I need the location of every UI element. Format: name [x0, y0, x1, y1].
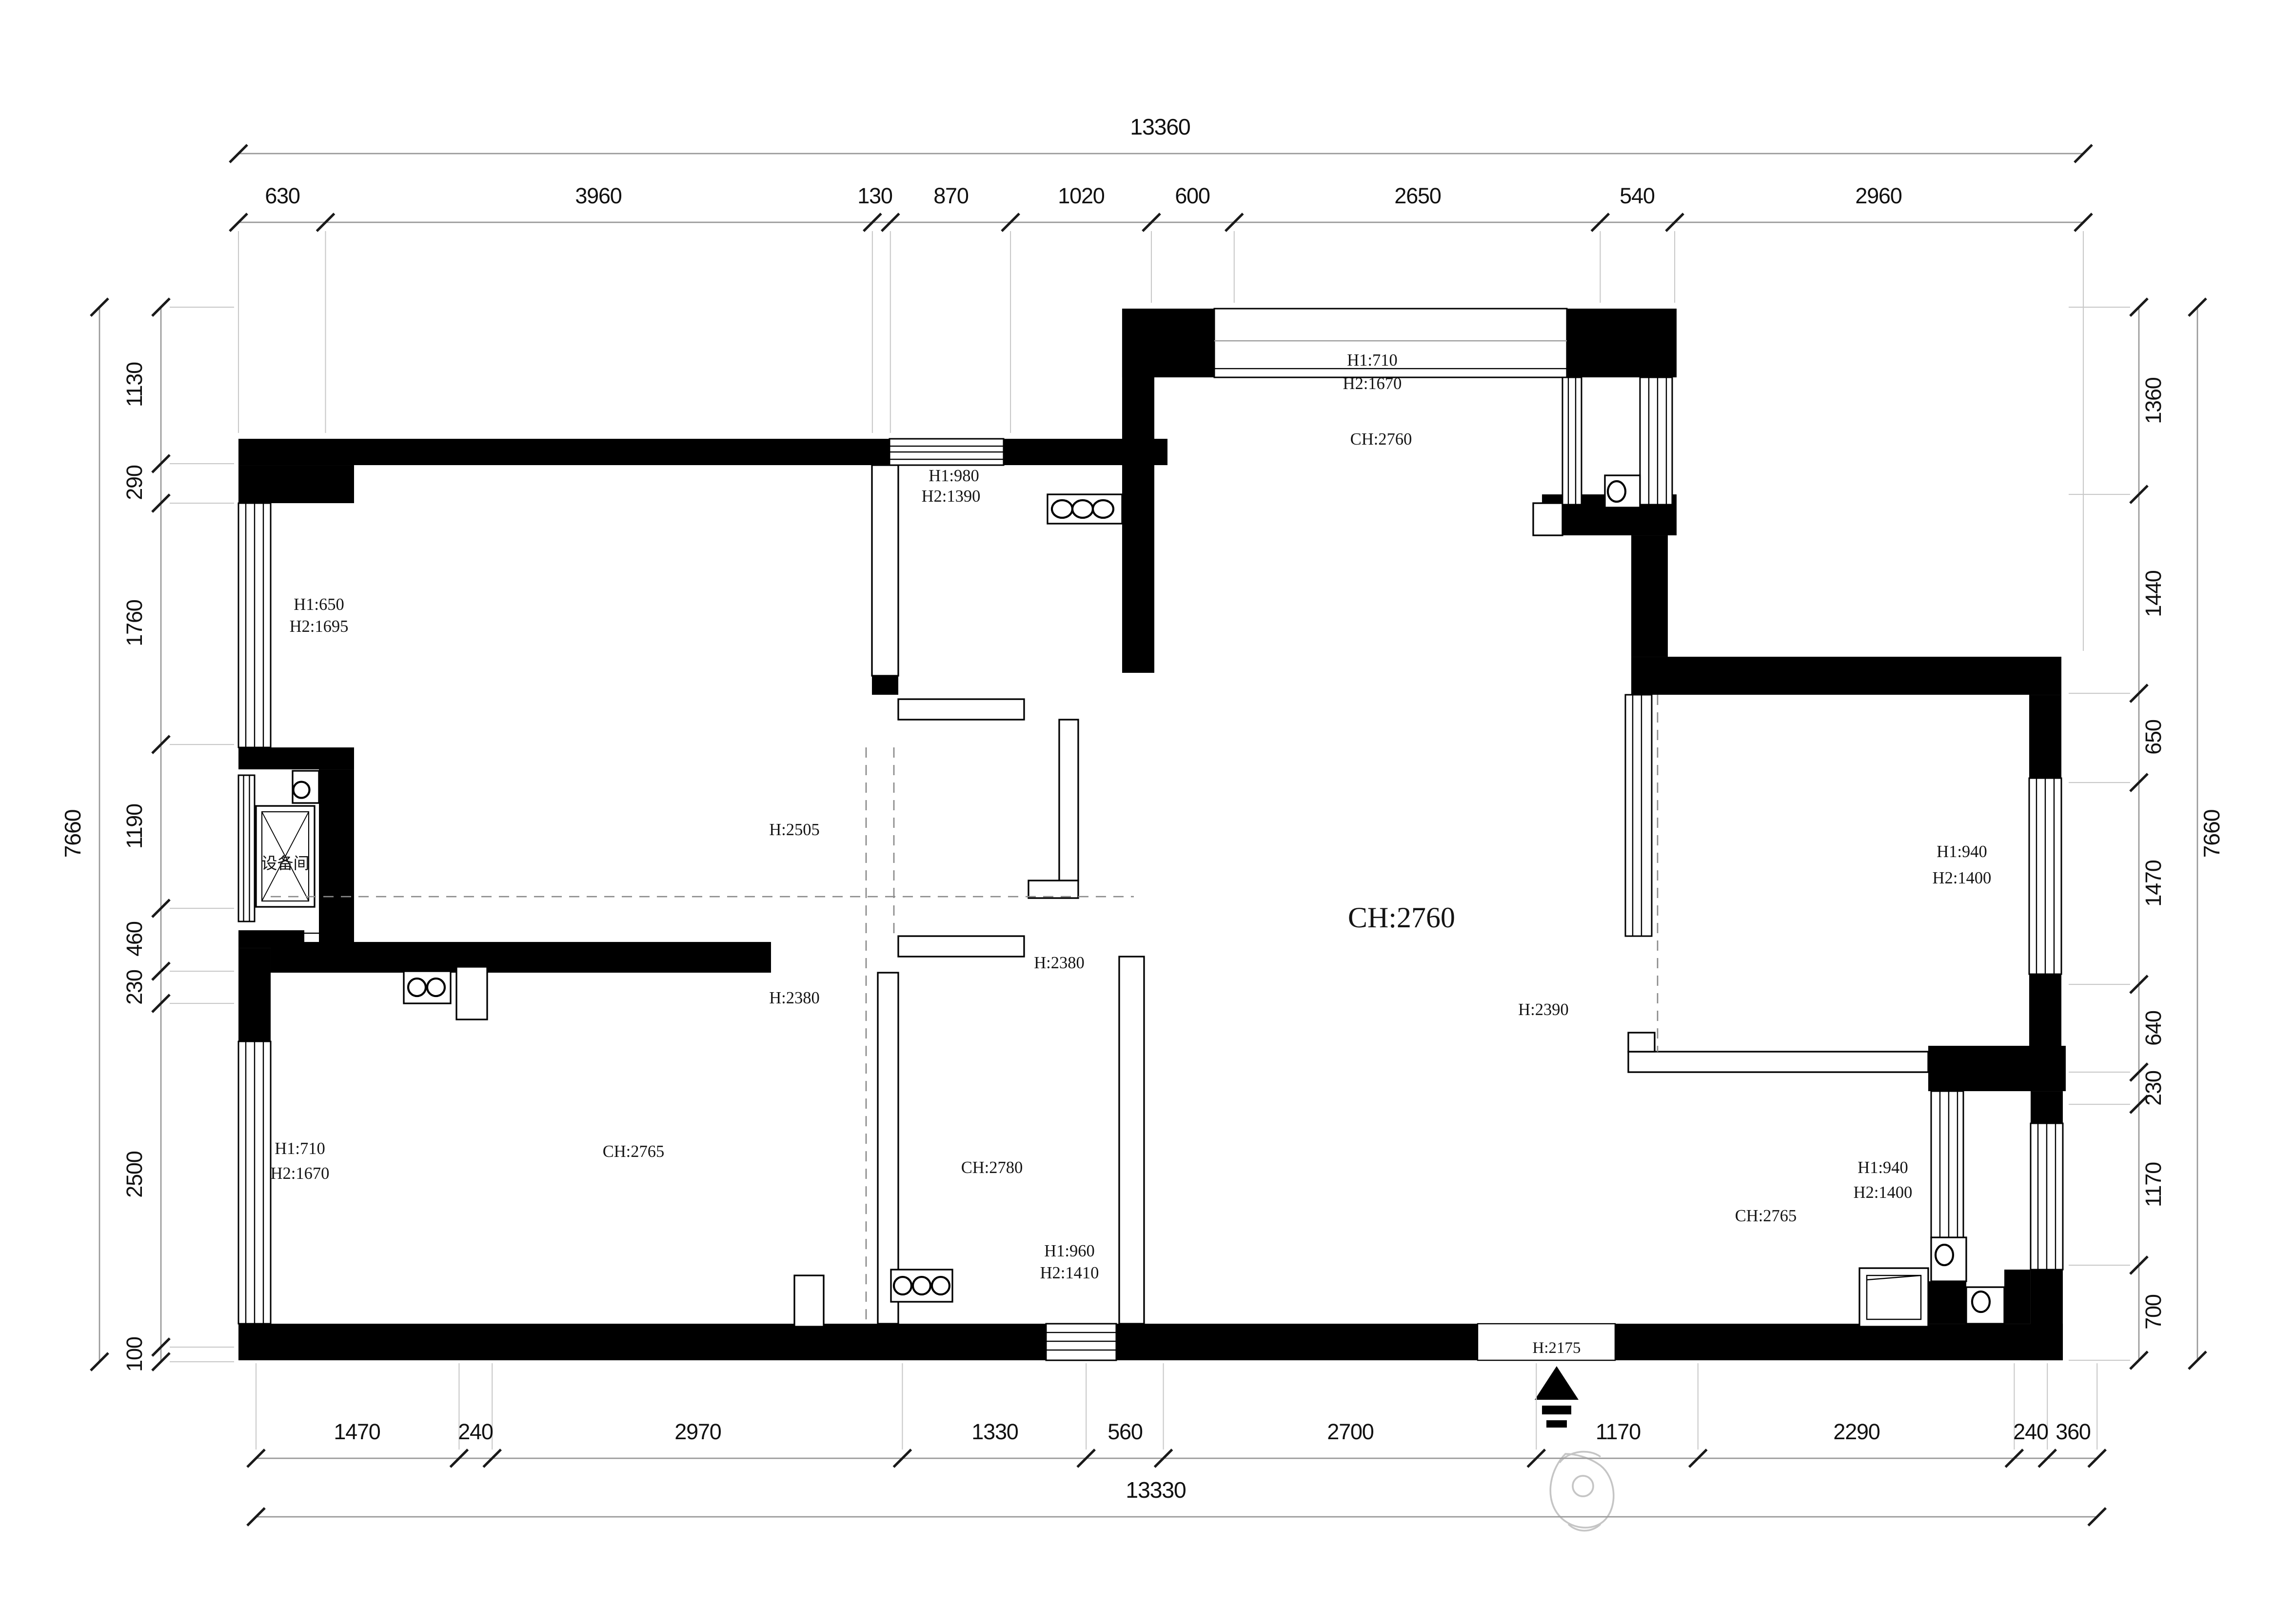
wall-bottom-a [238, 1324, 1046, 1360]
dim-top-8: 2960 [1855, 183, 1901, 208]
wall-br-bay-corner [2004, 1270, 2031, 1324]
window-balcony-right-outer [1563, 377, 1582, 505]
label-balcony-h2: H2:1670 [1343, 374, 1402, 393]
walls [238, 309, 2066, 1360]
partition-walls [456, 465, 1928, 1327]
label-entrance-h: H:2175 [1532, 1339, 1581, 1357]
partition-bath-right [1119, 957, 1144, 1324]
label-bath-ch: CH:2780 [961, 1158, 1023, 1177]
label-br-h2: H2:1400 [1854, 1183, 1913, 1202]
wall-balcony-top-right-block [1567, 309, 1677, 377]
partition-brroom-notch [1628, 1033, 1655, 1052]
window-brroom-strip [1931, 1091, 1963, 1237]
label-bl-ch: CH:2765 [603, 1142, 665, 1161]
dim-right-4: 640 [2141, 1011, 2166, 1046]
door-pivot-circle [293, 782, 309, 798]
wall-right-above-window [2029, 695, 2061, 778]
dim-top-2: 130 [857, 183, 892, 208]
door-equipment [293, 771, 319, 803]
wall-top-mid [1004, 439, 1167, 465]
window-bottomright [2031, 1123, 2063, 1270]
window-top-wall [890, 439, 1004, 465]
dim-left-7: 100 [122, 1337, 147, 1372]
door-bay-top [1931, 1237, 1966, 1281]
label-rm-h2: H2:1400 [1933, 869, 1992, 887]
pier-balcony-right [1533, 503, 1563, 535]
dim-bottom-7: 2290 [1833, 1419, 1880, 1444]
dim-bottom-6: 1170 [1596, 1419, 1641, 1444]
label-ulzone-h: H:2505 [769, 821, 819, 839]
partition-bath-top [898, 936, 1024, 957]
label-hall-h: H:2380 [1034, 954, 1084, 972]
entrance-arrow [1535, 1366, 1579, 1428]
label-midroom-h1: H1:980 [929, 467, 979, 485]
label-equipment-room: 设备间 [261, 854, 309, 873]
dim-right-6: 1170 [2141, 1162, 2166, 1207]
label-ulwindow-h2: H2:1695 [290, 617, 349, 636]
dim-top-3: 870 [933, 183, 969, 208]
door-pivot-circle [1936, 1245, 1953, 1265]
label-rm-h1: H1:940 [1937, 842, 1987, 861]
label-blwindow-h1: H1:710 [275, 1139, 325, 1158]
window-rightroom-left-strip [1625, 695, 1652, 936]
wall-right-upper-stem [1631, 535, 1668, 657]
dim-top-1: 3960 [575, 183, 621, 208]
dim-left-2: 1760 [122, 600, 147, 646]
dimension-right: 1360 1440 650 1470 640 230 1170 700 7660 [2069, 298, 2224, 1369]
dimension-bottom: 1470 240 2970 1330 560 2700 1170 2290 24… [247, 1363, 2106, 1526]
wall-bottom-c [1615, 1324, 2063, 1360]
radiator-bath [891, 1270, 952, 1302]
wall-divider-hatch-end [872, 676, 898, 695]
dim-bottom-3: 1330 [971, 1419, 1018, 1444]
label-living-right-h: H:2390 [1518, 1000, 1568, 1019]
wall-left-mid [238, 948, 271, 1041]
label-bath-h2: H2:1410 [1040, 1264, 1099, 1282]
partition-hall-vertical [1059, 720, 1078, 880]
dim-right-total: 7660 [2199, 809, 2224, 858]
wall-br-sink-side [1928, 1281, 1966, 1324]
floor-plan-canvas: 13360 630 3960 130 870 1020 600 2650 540… [0, 0, 2295, 1624]
wall-br-right-upper [2031, 1091, 2063, 1123]
dim-left-6: 2500 [122, 1151, 147, 1197]
wall-bottom-b [1116, 1324, 1478, 1360]
dimension-top: 13360 630 3960 130 870 1020 600 2650 540… [230, 114, 2092, 651]
door-bay-bottom [1966, 1287, 2004, 1324]
dim-top-7: 540 [1620, 183, 1655, 208]
window-bottomleft [238, 1041, 271, 1324]
sink-basin [1860, 1268, 1928, 1327]
dim-bottom-4: 560 [1108, 1419, 1143, 1444]
wall-br-right-corner [2031, 1270, 2063, 1360]
radiator-midroom [1048, 494, 1122, 524]
dim-bottom-1: 240 [458, 1419, 493, 1444]
pier-bottomleft [456, 967, 487, 1019]
dim-left-total: 7660 [60, 809, 85, 858]
dim-right-5: 230 [2141, 1071, 2166, 1106]
partition-hall-foot [1029, 880, 1078, 898]
partition-brroom-top [1628, 1052, 1928, 1072]
dim-bottom-2: 2970 [674, 1419, 721, 1444]
dim-top-0: 630 [265, 183, 300, 208]
window-rightroom [2029, 778, 2061, 974]
wall-equip-column [319, 769, 354, 948]
dim-right-2: 650 [2141, 720, 2166, 755]
wall-bottomleft-room-top [271, 942, 771, 973]
label-balcony-h1: H1:710 [1347, 351, 1397, 370]
wall-rightroom-top [1631, 657, 2061, 695]
label-living-ch: CH:2760 [1348, 901, 1455, 934]
window-bottom-wall [1046, 1324, 1116, 1360]
door-pivot-circle [1972, 1291, 1990, 1312]
label-midroom-h2: H2:1390 [922, 487, 981, 506]
label-br-ch: CH:2765 [1735, 1207, 1797, 1225]
radiator-bottomleft [404, 971, 451, 1003]
dim-bottom-8: 240 [2013, 1419, 2048, 1444]
dim-left-0: 1130 [122, 362, 147, 407]
label-blwindow-h2: H2:1670 [271, 1164, 330, 1183]
window-upperleft [238, 503, 271, 747]
window-equipment [238, 775, 255, 921]
dim-bottom-9: 360 [2056, 1419, 2091, 1444]
wall-equip-top [238, 747, 354, 769]
dim-right-7: 700 [2141, 1294, 2166, 1330]
door-balcony-right [1605, 475, 1640, 508]
dim-left-3: 1190 [122, 804, 147, 849]
dim-bottom-0: 1470 [334, 1419, 380, 1444]
dimension-left: 7660 1130 290 1760 1190 460 230 2500 100 [60, 298, 234, 1372]
dim-right-3: 1470 [2141, 860, 2166, 906]
dim-right-0: 1360 [2141, 377, 2166, 424]
dim-left-1: 290 [122, 465, 147, 500]
window-balcony-right-inner [1640, 377, 1672, 505]
dim-top-total: 13360 [1130, 114, 1190, 139]
partition-ulroom-midroom [872, 465, 898, 676]
label-ulwindow-h1: H1:650 [294, 595, 344, 614]
dim-left-4: 460 [122, 921, 147, 957]
label-bath-h1: H1:960 [1044, 1242, 1094, 1260]
dim-right-1: 1440 [2141, 570, 2166, 617]
dim-bottom-total: 13330 [1126, 1477, 1186, 1503]
label-balcony-ch: CH:2760 [1350, 430, 1412, 449]
wall-top-left [238, 439, 890, 465]
dim-bottom-5: 2700 [1327, 1419, 1373, 1444]
partition-midroom-bottom [898, 699, 1024, 720]
dim-left-5: 230 [122, 970, 147, 1005]
person-sketch [1550, 1452, 1614, 1531]
wall-topleft-corner-block [238, 465, 354, 503]
dim-top-4: 1020 [1058, 183, 1104, 208]
label-br-h1: H1:940 [1858, 1158, 1908, 1177]
wall-balcony-left-column [1122, 309, 1154, 673]
wall-brroom-top-block [1928, 1046, 2066, 1091]
dim-top-6: 2650 [1394, 183, 1441, 208]
pier-bottom-center [794, 1275, 824, 1327]
door-pivot-circle [1608, 481, 1625, 502]
label-leftzone-h: H:2380 [769, 989, 819, 1007]
dim-top-5: 600 [1175, 183, 1210, 208]
